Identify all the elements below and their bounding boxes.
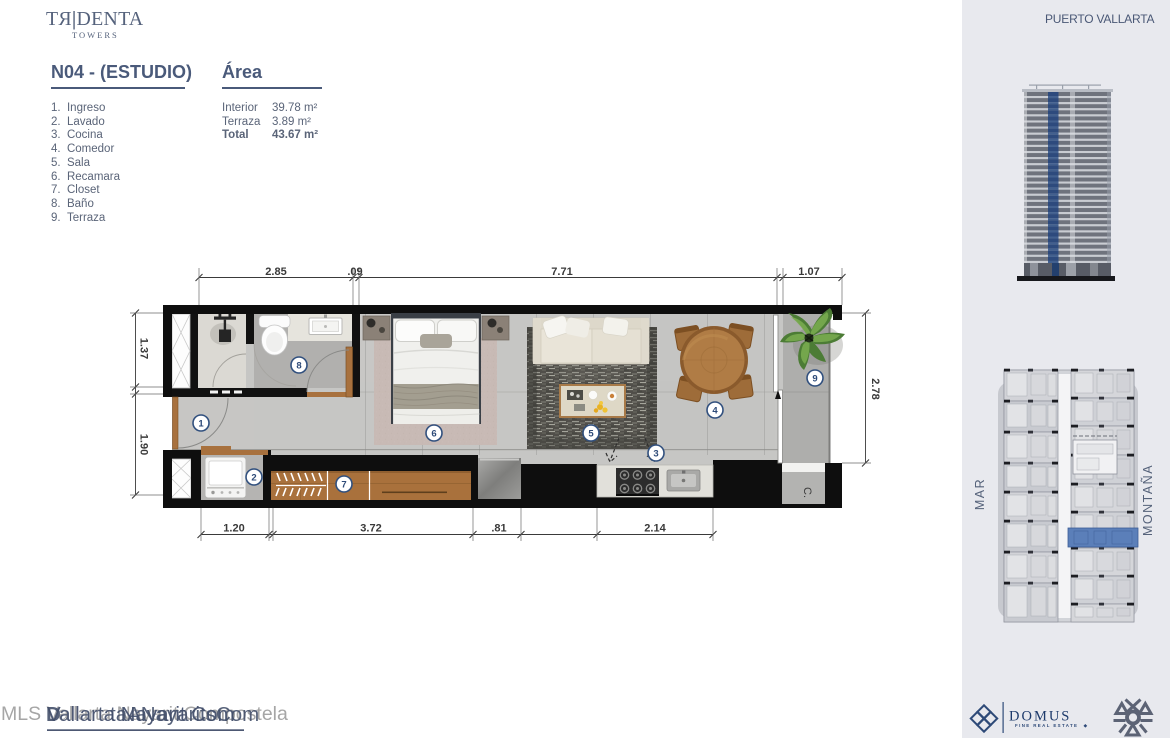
svg-text:1.90: 1.90 [138,434,150,455]
svg-text:2.78: 2.78 [869,378,881,399]
svg-text:MONTAÑA: MONTAÑA [1141,464,1155,536]
svg-text:7.71: 7.71 [551,266,572,278]
svg-text:MAR: MAR [973,478,987,510]
svg-text:.81: .81 [491,523,506,535]
svg-text:.09: .09 [347,266,362,278]
svg-text:2.14: 2.14 [644,523,666,535]
svg-text:7: 7 [341,479,346,490]
svg-text:9: 9 [812,373,817,384]
svg-text:1.07: 1.07 [798,266,819,278]
svg-text:5: 5 [588,428,594,439]
svg-text:8: 8 [296,360,301,371]
svg-text:3.72: 3.72 [360,523,381,535]
svg-text:2.85: 2.85 [265,266,286,278]
svg-text:1: 1 [198,418,204,429]
svg-text:1.37: 1.37 [138,338,150,359]
svg-text:4: 4 [712,405,718,416]
svg-text:6: 6 [431,428,436,439]
svg-text:FINE REAL ESTATE ◆: FINE REAL ESTATE ◆ [1015,723,1088,728]
svg-text:1.20: 1.20 [223,523,244,535]
svg-text:D: D [46,703,61,726]
svg-text:2: 2 [251,472,256,483]
svg-text:C.: C. [801,487,813,498]
svg-text:taANayaritsCom: taANayaritsCom [110,703,259,726]
svg-text:3: 3 [653,448,658,459]
